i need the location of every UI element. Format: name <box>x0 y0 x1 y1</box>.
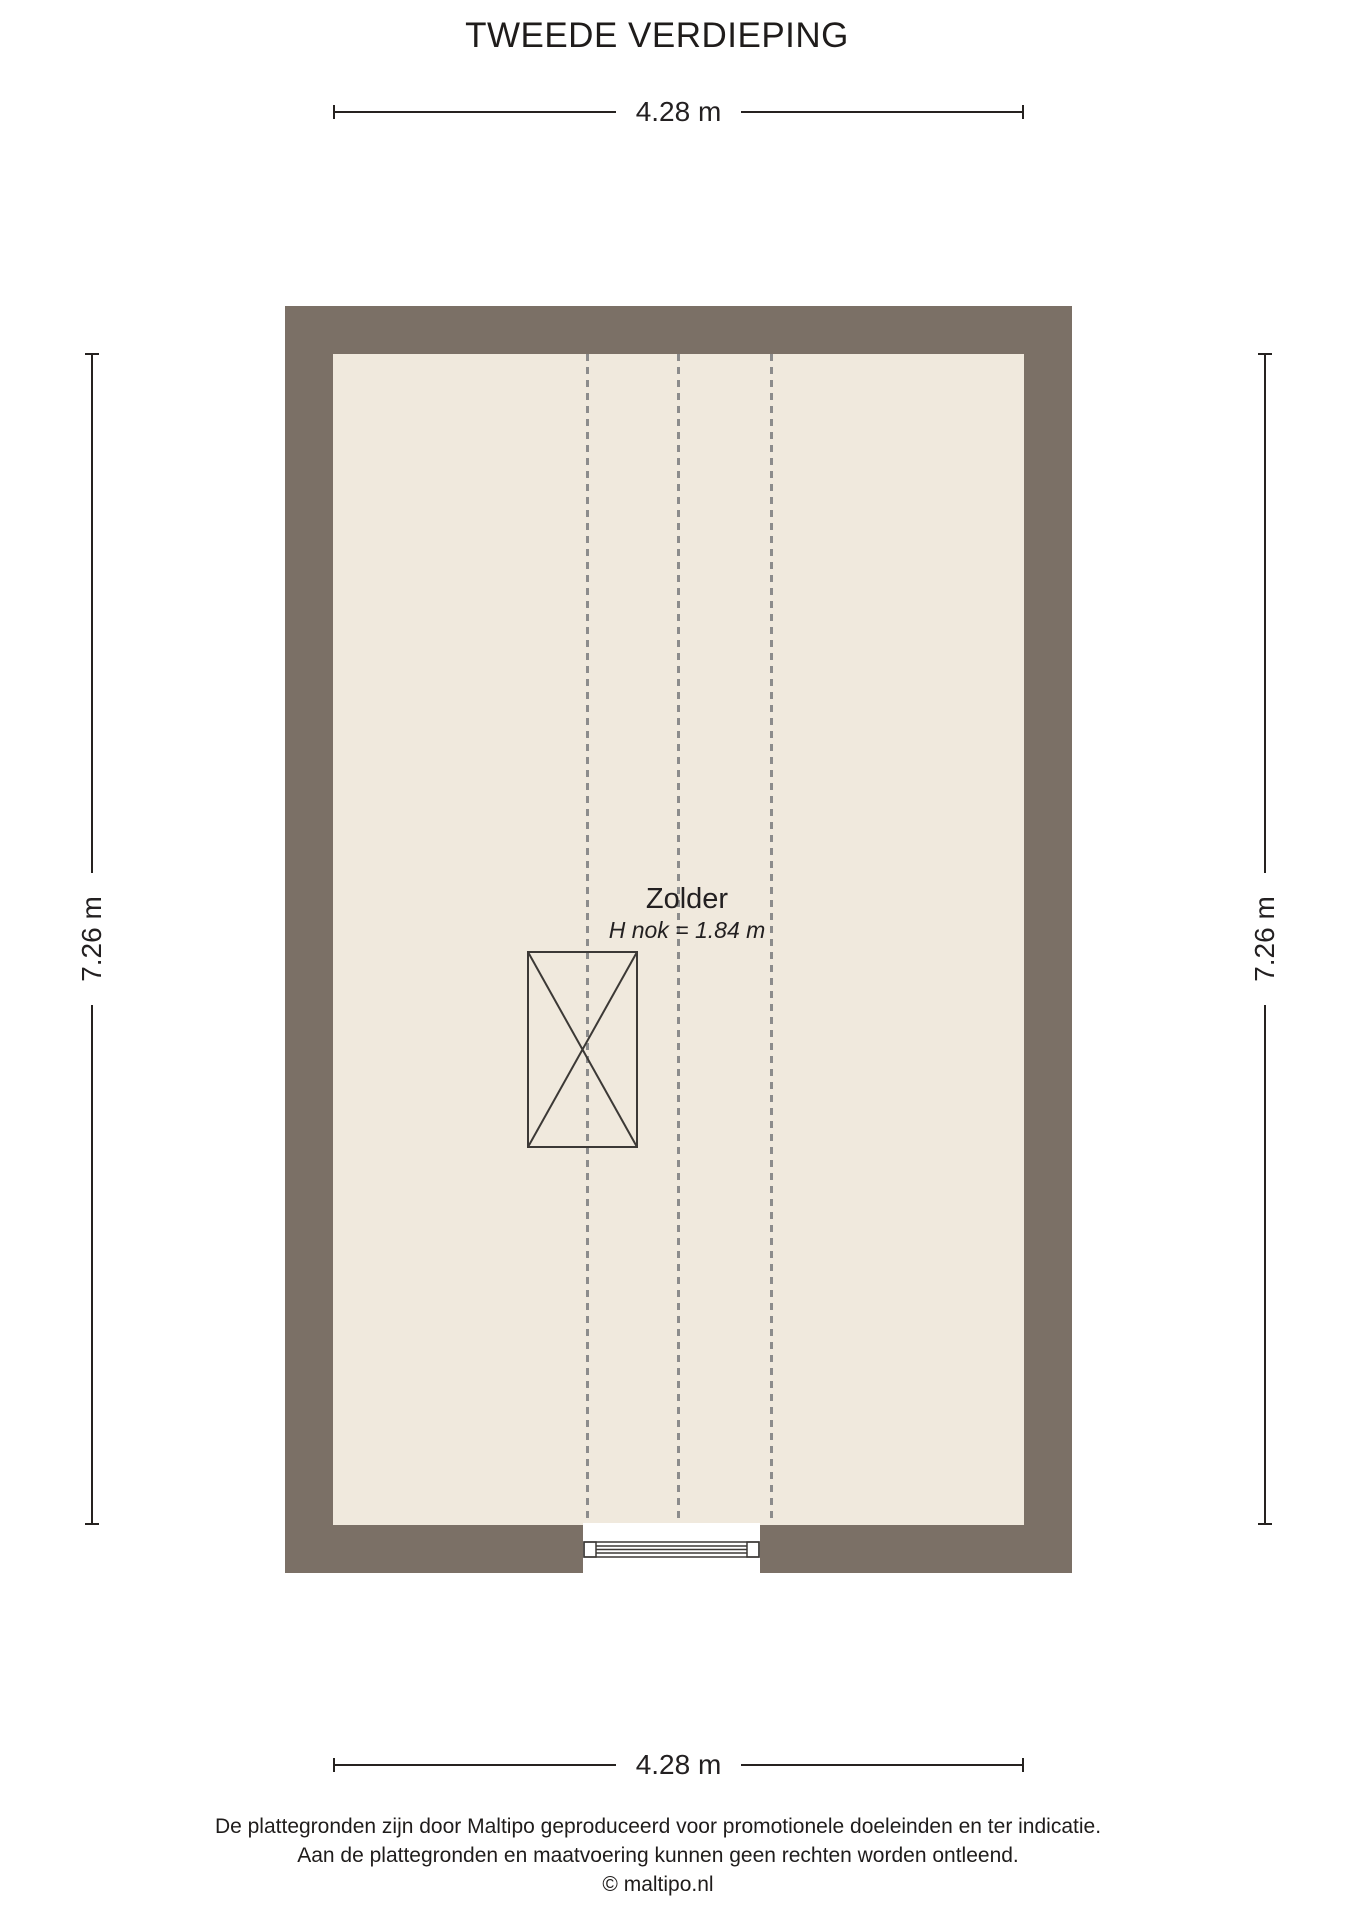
dimension-label-left: 7.26 m <box>49 873 135 1005</box>
dimension-label-right: 7.26 m <box>1222 873 1308 1005</box>
dimension-right: 7.26 m <box>1245 353 1285 1525</box>
dimension-top: 4.28 m <box>333 92 1024 132</box>
floorplan-page: TWEEDE VERDIEPING 4.28 m 7.26 m 7.26 m <box>0 0 1358 1920</box>
dimension-line <box>741 1764 1022 1766</box>
dimension-left: 7.26 m <box>72 353 112 1525</box>
wall-outline: Zolder H nok = 1.84 m <box>285 306 1072 1573</box>
dimension-tick <box>85 1523 99 1525</box>
dimension-line <box>335 111 616 113</box>
footer-copyright: © maltipo.nl <box>0 1870 1316 1899</box>
dimension-line <box>335 1764 616 1766</box>
dimension-line <box>1264 1005 1266 1523</box>
dimension-tick <box>1022 1758 1024 1772</box>
void-stairwell-symbol <box>527 951 638 1148</box>
dimension-tick <box>1022 105 1024 119</box>
dimension-tick <box>1258 1523 1272 1525</box>
dimension-line <box>91 1005 93 1523</box>
footer-disclaimer-line2: Aan de plattegronden en maatvoering kunn… <box>0 1841 1316 1870</box>
window-symbol <box>583 1541 760 1558</box>
page-title: TWEEDE VERDIEPING <box>0 16 1314 56</box>
dimension-bottom: 4.28 m <box>333 1745 1024 1785</box>
dimension-label-bottom: 4.28 m <box>616 1749 742 1781</box>
footer-disclaimer-line1: De plattegronden zijn door Maltipo gepro… <box>0 1812 1316 1841</box>
ridge-height-label: H nok = 1.84 m <box>537 916 837 944</box>
dimension-line <box>1264 355 1266 873</box>
room-label: Zolder H nok = 1.84 m <box>537 882 837 944</box>
dimension-line <box>741 111 1022 113</box>
dimension-label-top: 4.28 m <box>616 96 742 128</box>
dimension-line <box>91 355 93 873</box>
room-name-label: Zolder <box>537 882 837 916</box>
footer: De plattegronden zijn door Maltipo gepro… <box>0 1812 1316 1899</box>
